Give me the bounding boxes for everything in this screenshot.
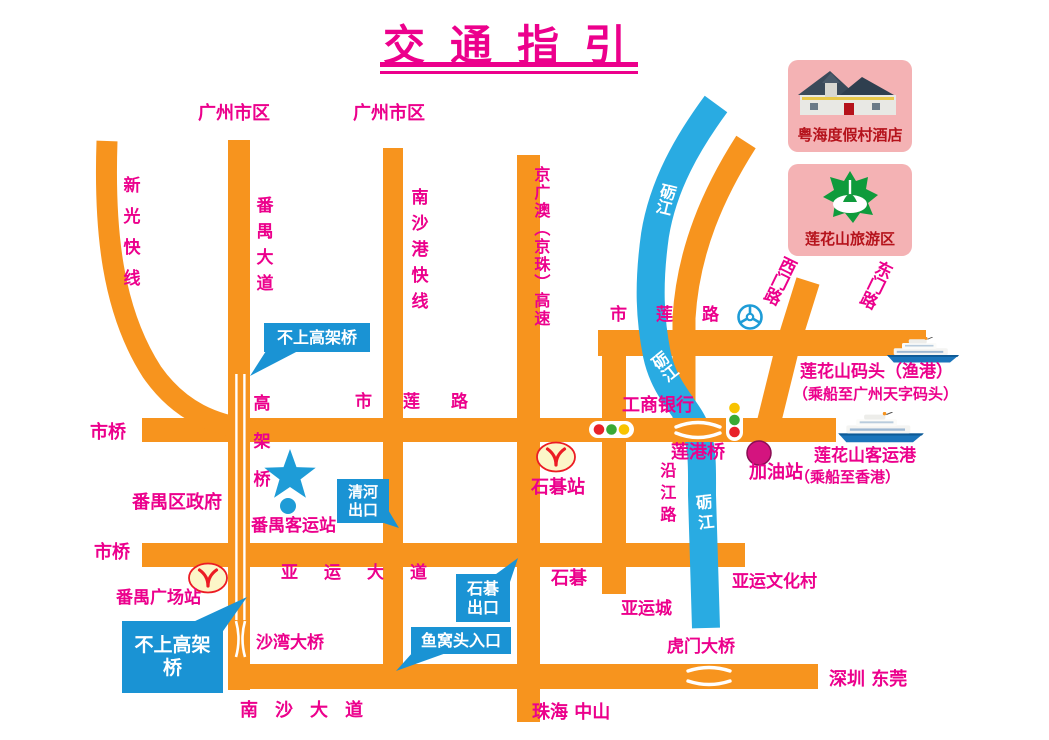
label-passenger-port-line1: 莲花山客运港 bbox=[814, 447, 916, 467]
resort-hotel-photo bbox=[794, 67, 906, 119]
callout-no-viaduct-bottom: 不上高架桥 bbox=[122, 621, 223, 693]
label-panyu-square-station: 番禺广场站 bbox=[116, 589, 201, 609]
title-underline bbox=[380, 62, 638, 74]
label-shilian-road-east: 市莲路 bbox=[610, 306, 748, 326]
label-humen-bridge: 虎门大桥 bbox=[667, 638, 735, 658]
label-zhuhai-zhongshan: 珠海 中山 bbox=[532, 703, 610, 724]
label-ferry-pier-line1: 莲花山码头（渔港） bbox=[800, 363, 953, 383]
tail-no-viaduct-top bbox=[250, 351, 298, 376]
ferry-ship-icon-passenger-port bbox=[838, 412, 923, 442]
lotus-mountain-emblem bbox=[821, 170, 879, 224]
label-shiqi-metro-station: 石碁站 bbox=[531, 478, 585, 499]
label-shiqi: 石碁 bbox=[551, 569, 587, 590]
panel-label-lotus-scenic-area: 莲花山旅游区 bbox=[788, 228, 912, 249]
label-panyu-avenue: 番禺大道 bbox=[252, 196, 272, 300]
label-panyu-bus-terminal: 番禺客运站 bbox=[251, 517, 336, 537]
label-liangang-bridge: 莲港桥 bbox=[671, 443, 725, 464]
label-shiqiao-lower: 市桥 bbox=[94, 543, 130, 564]
label-lijiang-river-low: 砺江 bbox=[692, 493, 714, 535]
label-passenger-port-line2: （乘船至香港） bbox=[795, 469, 900, 486]
label-viaduct: 高架桥 bbox=[249, 394, 269, 508]
panel-label-resort-hotel: 粤海度假村酒店 bbox=[788, 124, 912, 145]
label-jingzhu-expressway: 京广澳（京珠）高速 bbox=[531, 166, 549, 328]
label-panyu-government: 番禺区政府 bbox=[132, 493, 222, 514]
government-star-icon bbox=[264, 449, 315, 498]
callout-yuwotou-entry: 鱼窝头入口 bbox=[411, 627, 511, 654]
label-shenzhen-dongguan: 深圳 东莞 bbox=[829, 670, 907, 691]
label-shilian-road-west: 市莲路 bbox=[355, 393, 499, 413]
label-guangzhou-city-2: 广州市区 bbox=[353, 104, 425, 125]
traffic-light-icon-horizontal bbox=[589, 421, 634, 438]
road-yanjiang bbox=[602, 345, 626, 594]
callout-qinghe-exit: 清河出口 bbox=[337, 479, 389, 523]
label-yayun-avenue: 亚运大道 bbox=[281, 564, 453, 584]
traffic-light-icon-vertical bbox=[726, 399, 743, 441]
map-canvas: 交通指引 粤海度假村酒店 莲花山旅游区 广州市区 广州市区 新光快线 番禺大道 … bbox=[0, 0, 1049, 740]
label-shiqiao-upper: 市桥 bbox=[90, 423, 126, 444]
label-xinguang-expressway: 新光快线 bbox=[119, 176, 139, 300]
label-icbc-bank: 工商银行 bbox=[622, 396, 694, 417]
label-guangzhou-city-1: 广州市区 bbox=[198, 104, 270, 125]
panel-lotus-scenic-area: 莲花山旅游区 bbox=[788, 164, 912, 256]
label-nansha-avenue: 南沙大道 bbox=[240, 701, 380, 722]
bus-terminal-dot bbox=[280, 498, 296, 514]
panel-resort-hotel: 粤海度假村酒店 bbox=[788, 60, 912, 152]
label-ferry-pier-line2: （乘船至广州天字码头） bbox=[793, 386, 958, 403]
label-yanjiang-road: 沿江路 bbox=[657, 462, 675, 528]
callout-no-viaduct-top: 不上高架桥 bbox=[264, 323, 370, 352]
label-yayun-city: 亚运城 bbox=[621, 600, 672, 620]
label-yayun-culture-village: 亚运文化村 bbox=[732, 573, 817, 593]
label-shawan-bridge: 沙湾大桥 bbox=[256, 634, 324, 654]
label-nanshagang-expressway: 南沙港快线 bbox=[407, 188, 427, 318]
callout-shiqi-exit: 石碁出口 bbox=[456, 574, 510, 622]
road-nanshagang bbox=[383, 148, 403, 689]
metro-icon-shiqi bbox=[537, 443, 575, 472]
